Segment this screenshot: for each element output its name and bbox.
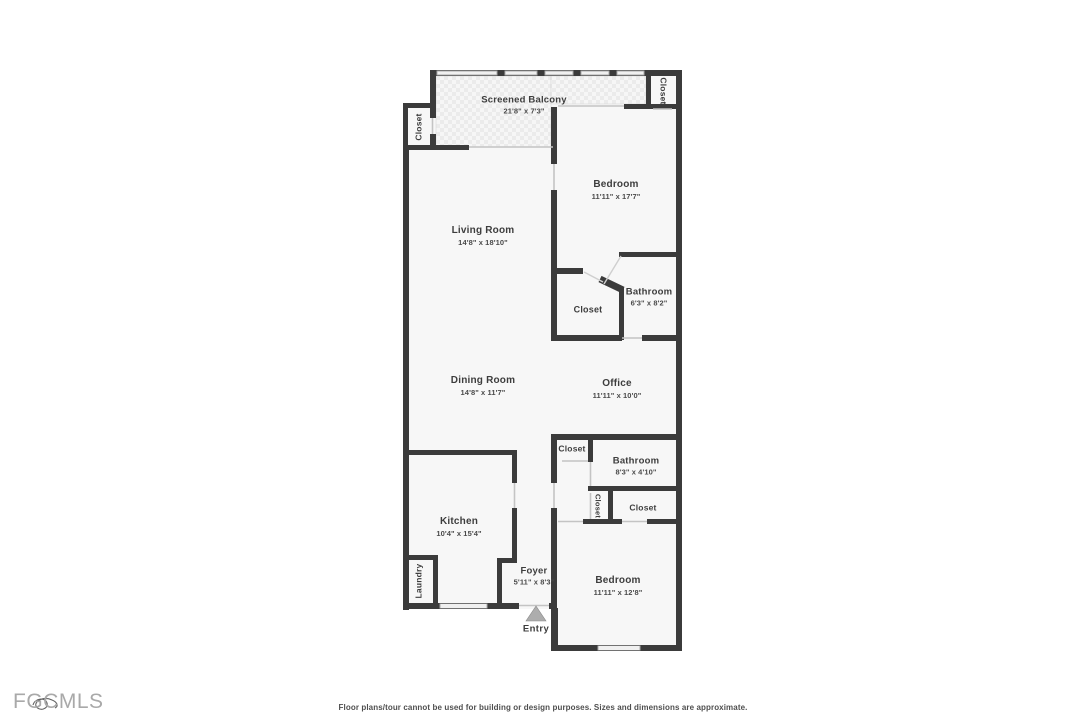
room-label-closet-hall: Closet: [558, 444, 585, 455]
room-label-bedroom-1: Bedroom 11'11" x 17'7": [592, 179, 641, 201]
room-label-screened-balcony: Screened Balcony 21'8" x 7'3": [481, 94, 567, 115]
room-label-bathroom-2: Bathroom 8'3" x 4'10": [613, 455, 659, 476]
room-label-closet-top-right: Closet: [658, 77, 669, 104]
room-label-closet-top-left: Closet: [414, 113, 425, 140]
room-label-closet-bedroom-1: Closet: [574, 304, 603, 315]
floorplan-page: Screened Balcony 21'8" x 7'3" Closet Clo…: [0, 0, 1086, 724]
room-label-bathroom-1: Bathroom 6'3" x 8'2": [626, 286, 672, 307]
room-label-living-room: Living Room 14'8" x 18'10": [452, 225, 515, 247]
bedroom-window: [598, 646, 640, 651]
room-label-foyer: Foyer 5'11" x 8'3": [514, 565, 555, 586]
room-label-kitchen: Kitchen 10'4" x 15'4": [436, 516, 481, 538]
room-label-closet-hall-small: Closet: [593, 494, 602, 518]
kitchen-window: [440, 604, 487, 609]
room-label-office: Office 11'11" x 10'0": [593, 378, 642, 400]
floor-area: [403, 70, 682, 651]
room-label-laundry: Laundry: [414, 564, 425, 599]
room-label-closet-bedroom-2: Closet: [629, 503, 656, 514]
entry-label: Entry: [523, 624, 549, 635]
room-label-dining-room: Dining Room 14'8" x 11'7": [451, 375, 515, 397]
room-label-bedroom-2: Bedroom 11'11" x 12'8": [594, 575, 643, 597]
disclaimer-text: Floor plans/tour cannot be used for buil…: [0, 703, 1086, 712]
